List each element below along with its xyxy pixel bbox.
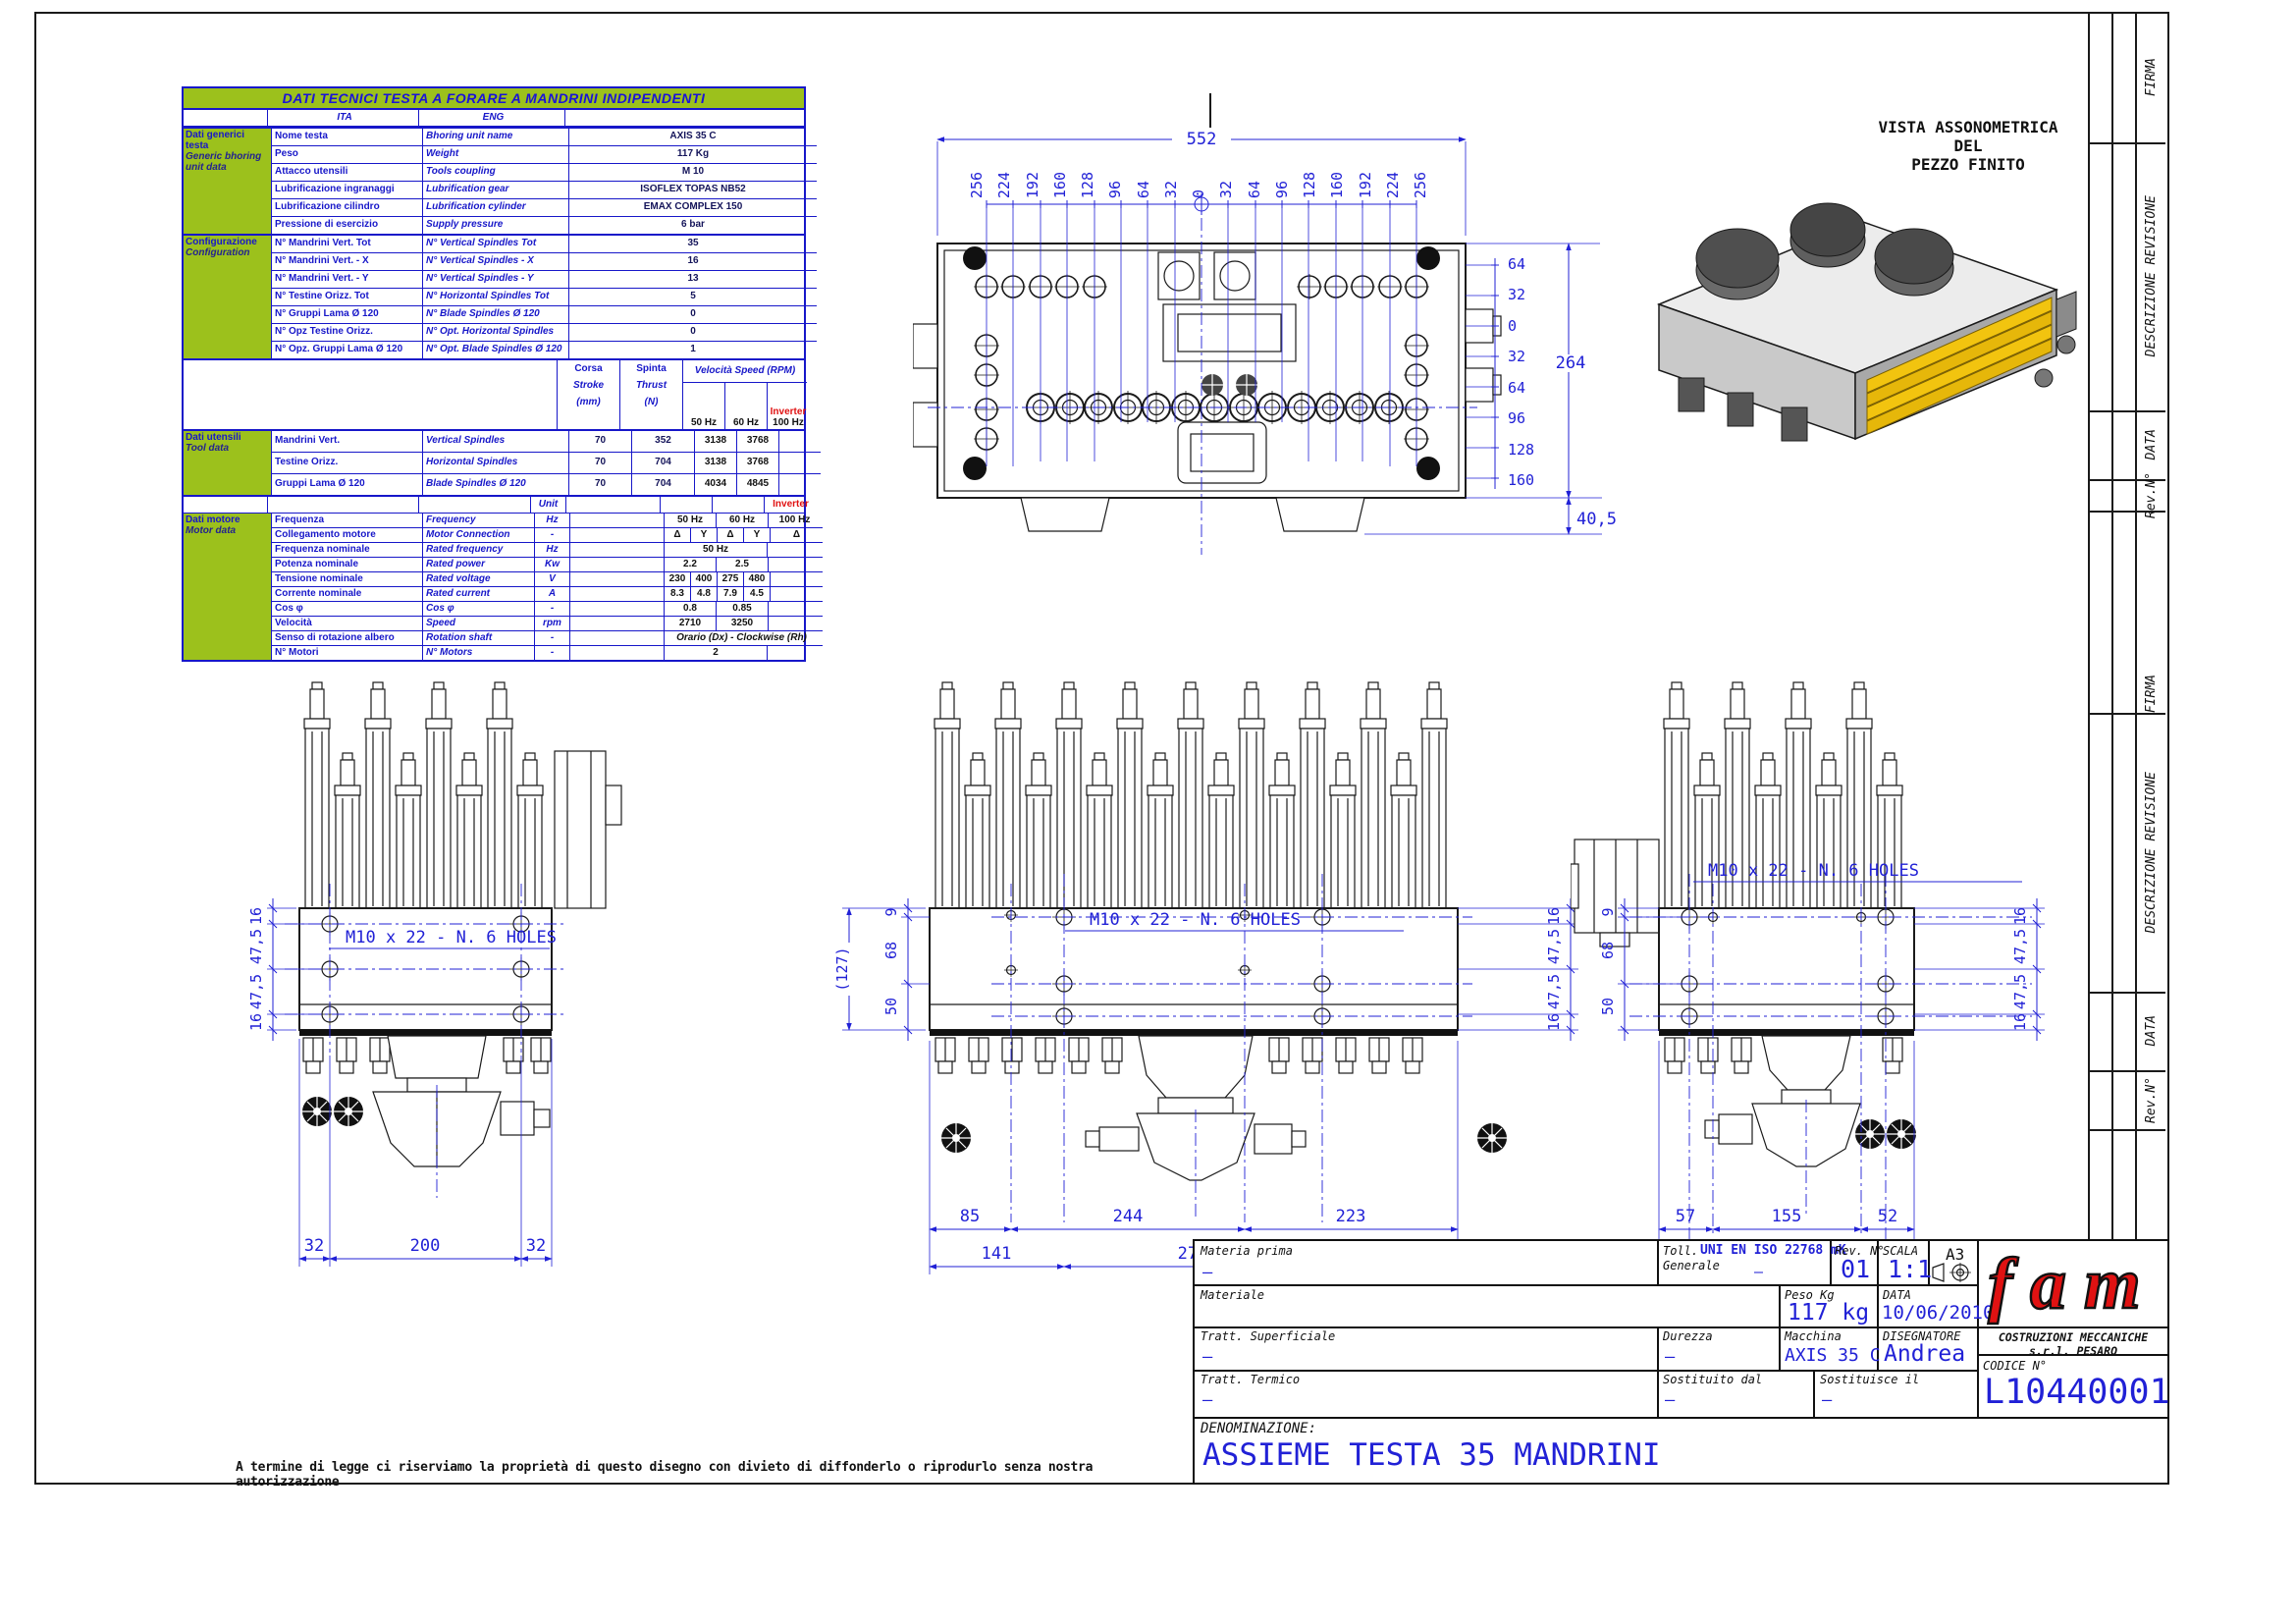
svg-text:47,5: 47,5 xyxy=(1545,974,1563,1009)
table-row: VelocitàSpeedrpm27103250 xyxy=(271,616,823,630)
svg-text:16: 16 xyxy=(2011,907,2029,925)
toll-value: UNI EN ISO 22768 mK xyxy=(1700,1243,1846,1258)
tratt-term-label: Tratt. Termico xyxy=(1201,1373,1300,1386)
codice-label: CODICE N° xyxy=(1983,1359,2047,1373)
svg-text:9: 9 xyxy=(1599,907,1617,916)
tool-holders xyxy=(935,1036,1422,1113)
top-view: 552 264 40,5 256224192160128966432032649… xyxy=(913,128,1629,609)
revision-label-revn-2: Rev.N° xyxy=(2137,1070,2165,1129)
drawing-sheet: FIRMA DESCRIZIONE REVISIONE DATA Rev.N° … xyxy=(0,0,2296,1624)
revision-label-data-1: DATA xyxy=(2137,410,2165,479)
technical-data-table: DATI TECNICI TESTA A FORARE A MANDRINI I… xyxy=(182,86,806,662)
svg-text:85: 85 xyxy=(960,1207,980,1226)
revision-label-data-2: DATA xyxy=(2137,992,2165,1070)
svg-text:16: 16 xyxy=(247,1013,265,1031)
projection-symbol xyxy=(1931,1263,1976,1282)
iso-body xyxy=(1659,203,2076,441)
svg-text:(127): (127) xyxy=(833,947,851,991)
svg-text:16: 16 xyxy=(1545,907,1563,925)
sostituito-dal-label: Sostituito dal xyxy=(1663,1373,1762,1386)
svg-text:16: 16 xyxy=(1545,1013,1563,1031)
materiale-label: Materiale xyxy=(1201,1288,1264,1302)
table-row: Pressione di esercizioSupply pressure6 b… xyxy=(271,216,817,234)
table-row: Frequenza nominaleRated frequencyHz50 Hz xyxy=(271,542,823,557)
svg-text:141: 141 xyxy=(982,1244,1012,1264)
table-row: Lubrificazione cilindroLubrification cyl… xyxy=(271,198,817,216)
table-row: Gruppi Lama Ø 120Blade Spindles Ø 120707… xyxy=(271,473,821,495)
hole-note: M10 x 22 - N. 6 HOLES xyxy=(329,928,557,948)
macchina-value: AXIS 35 C xyxy=(1785,1345,1881,1366)
table-row: PesoWeight117 Kg xyxy=(271,145,817,163)
section-configuration: ConfigurazioneConfiguration N° Mandrini … xyxy=(184,234,804,358)
hole-note: M10 x 22 - N. 6 HOLES xyxy=(1065,910,1404,931)
table-row: Potenza nominaleRated powerKw2.22.5 xyxy=(271,557,823,571)
toll-label-1: Toll. xyxy=(1663,1244,1698,1258)
svg-text:68: 68 xyxy=(1599,942,1617,959)
svg-text:32: 32 xyxy=(526,1236,546,1256)
svg-text:50: 50 xyxy=(882,998,900,1015)
table-row: Lubrificazione ingranaggiLubrification g… xyxy=(271,181,817,198)
svg-text:16: 16 xyxy=(247,907,265,925)
table-row: Senso di rotazione alberoRotation shaft-… xyxy=(271,630,823,645)
svg-text:244: 244 xyxy=(1113,1207,1144,1226)
table-title: DATI TECNICI TESTA A FORARE A MANDRINI I… xyxy=(184,88,804,110)
right-dim-chain: 16 47,5 47,5 16 xyxy=(1914,898,2045,1041)
svg-text:47,5: 47,5 xyxy=(247,974,265,1009)
gearbox xyxy=(941,1113,1507,1180)
denominazione-label: DENOMINAZIONE: xyxy=(1201,1421,1316,1436)
svg-text:16: 16 xyxy=(2011,1013,2029,1031)
table-row: Mandrini Vert.Vertical Spindles703523138… xyxy=(271,431,821,452)
isometric-view-title: VISTA ASSONOMETRICA DEL PEZZO FINITO xyxy=(1855,118,2081,174)
revision-label-firma-1: FIRMA xyxy=(2137,12,2165,142)
tool-holders xyxy=(303,1036,551,1092)
svg-text:155: 155 xyxy=(1772,1207,1802,1226)
gearbox xyxy=(1705,1104,1916,1166)
materia-prima-label: Materia prima xyxy=(1201,1244,1293,1258)
svg-text:57: 57 xyxy=(1676,1207,1695,1226)
section-label: Dati generici testa xyxy=(186,130,269,151)
revision-label-firma-2: FIRMA xyxy=(2137,511,2165,713)
hole-markers xyxy=(1678,905,1897,1028)
top-view-center-assembly xyxy=(1158,252,1296,483)
section-label-eng: Generic bhoring unit data xyxy=(186,151,269,173)
revision-label-descrizione-1: DESCRIZIONE REVISIONE xyxy=(2137,142,2165,410)
codice-value: L10440001 xyxy=(1984,1373,2170,1412)
legal-disclaimer: A termine di legge ci riserviamo la prop… xyxy=(236,1460,1119,1489)
disegnatore-value: Andrea xyxy=(1884,1341,1965,1367)
hole-note: M10 x 22 - N. 6 HOLES xyxy=(1693,861,2022,882)
table-row: Corrente nominaleRated currentA8.34.87.9… xyxy=(271,586,823,601)
overall-dim: (127) xyxy=(833,908,926,1030)
section-generic: Dati generici testaGeneric bhoring unit … xyxy=(184,127,804,234)
company-name: COSTRUZIONI MECCANICHE s.r.l. PESARO xyxy=(1979,1330,2167,1358)
spindle-row xyxy=(934,682,1447,908)
tratt-term-value: – xyxy=(1202,1390,1212,1410)
svg-text:200: 200 xyxy=(410,1236,441,1256)
svg-text:68: 68 xyxy=(882,942,900,959)
frame-center-mark xyxy=(1209,93,1211,128)
col-eng: ENG xyxy=(418,110,564,126)
materia-prima-value: – xyxy=(1202,1263,1212,1282)
table-row: N° Testine Orizz. TotN° Horizontal Spind… xyxy=(271,288,817,305)
rev-value: 01 xyxy=(1841,1255,1870,1283)
title-block: Materia prima – Toll. Generale UNI EN IS… xyxy=(1193,1239,2169,1485)
data-label: DATA xyxy=(1883,1288,1911,1302)
table-row: N° Mandrini Vert. - YN° Vertical Spindle… xyxy=(271,270,817,288)
col-ita: ITA xyxy=(267,110,418,126)
left-dim-chain: 9 68 50 xyxy=(882,898,930,1041)
table-row: Testine Orizz.Horizontal Spindles7070431… xyxy=(271,452,821,473)
table-row: Tensione nominaleRated voltageV230400275… xyxy=(271,571,823,586)
sostituisce-il-label: Sostituisce il xyxy=(1820,1373,1919,1386)
format-label: A3 xyxy=(1946,1245,1964,1264)
tratt-sup-label: Tratt. Superficiale xyxy=(1201,1329,1335,1343)
scala-value: 1:1 xyxy=(1888,1255,1932,1283)
sostituito-dal-value: – xyxy=(1665,1390,1675,1410)
table-row: FrequenzaFrequencyHz50 Hz60 Hz100 Hz xyxy=(271,514,823,527)
spindle-row xyxy=(304,682,621,908)
svg-text:M10 x 22 - N. 6 HOLES: M10 x 22 - N. 6 HOLES xyxy=(1090,910,1301,930)
table-row: Attacco utensiliTools couplingM 10 xyxy=(271,163,817,181)
tratt-sup-value: – xyxy=(1202,1347,1212,1367)
durezza-label: Durezza xyxy=(1663,1329,1713,1343)
front-view-left: M10 x 22 - N. 6 HOLES 16 47,5 47,5 16 32… xyxy=(226,648,667,1296)
table-row: N° Mandrini Vert. - XN° Vertical Spindle… xyxy=(271,252,817,270)
svg-text:M10 x 22 - N. 6 HOLES: M10 x 22 - N. 6 HOLES xyxy=(1708,861,1919,881)
table-row: N° Gruppi Lama Ø 120N° Blade Spindles Ø … xyxy=(271,305,817,323)
top-view-x-tick-labels: 2562241921601289664320326496128160192224… xyxy=(968,145,1429,198)
gearbox xyxy=(302,1092,550,1166)
svg-text:50: 50 xyxy=(1599,998,1617,1015)
stroke-thrust-speed-header: CorsaStroke(mm) SpintaThrust(N) Velocità… xyxy=(184,358,804,429)
svg-text:M10 x 22 - N. 6 HOLES: M10 x 22 - N. 6 HOLES xyxy=(346,928,557,947)
table-row: Collegamento motoreMotor Connection-ΔYΔY… xyxy=(271,527,823,542)
macchina-label: Macchina xyxy=(1785,1329,1842,1343)
sostituisce-il-value: – xyxy=(1822,1390,1832,1410)
front-view-right: M10 x 22 - N. 6 HOLES 9 68 50 16 47,5 47… xyxy=(1571,628,2081,1306)
revision-label-revn-1: Rev.N° xyxy=(2137,479,2165,511)
denominazione-value: ASSIEME TESTA 35 MANDRINI xyxy=(1202,1437,1661,1473)
toll-dash: – xyxy=(1754,1263,1763,1280)
svg-text:9: 9 xyxy=(882,907,900,916)
right-dim-chain: 16 47,5 47,5 16 xyxy=(1458,898,1578,1041)
svg-text:47,5: 47,5 xyxy=(1545,929,1563,964)
top-view-y-tick-labels: 64320326496128160 xyxy=(1508,255,1551,489)
table-row: N° Opz Testine Orizz.N° Opt. Horizontal … xyxy=(271,323,817,341)
svg-text:47,5: 47,5 xyxy=(2011,929,2029,964)
dim-264: 264 xyxy=(1556,353,1586,373)
data-value: 10/06/2010 xyxy=(1882,1302,1994,1324)
toll-label-2: Generale xyxy=(1663,1259,1720,1272)
section-tools: Dati utensiliTool data Mandrini Vert.Ver… xyxy=(184,429,804,495)
table-language-header: ITA ENG xyxy=(184,110,804,127)
isometric-view: VISTA ASSONOMETRICA DEL PEZZO FINITO xyxy=(1620,93,2081,486)
revision-label-descrizione-2: DESCRIZIONE REVISIONE xyxy=(2137,713,2165,992)
front-view-middle: M10 x 22 - N. 6 HOLES (127) 9 68 50 xyxy=(766,628,1590,1306)
svg-text:32: 32 xyxy=(304,1236,324,1256)
section-motor: Dati motoreMotor data FrequenzaFrequency… xyxy=(184,513,804,660)
unit-header-row: Unit Inverter xyxy=(184,495,804,513)
spindle-row xyxy=(1571,682,1902,947)
dim-40-5: 40,5 xyxy=(1576,510,1617,529)
table-row: N° Opz. Gruppi Lama Ø 120N° Opt. Blade S… xyxy=(271,341,817,358)
durezza-value: – xyxy=(1665,1347,1675,1367)
tool-holders xyxy=(1665,1036,1902,1104)
table-row: Nome testaBhoring unit nameAXIS 35 C xyxy=(271,129,817,145)
table-row: Cos φCos φ-0.80.85 xyxy=(271,601,823,616)
company-logo: fam xyxy=(1979,1241,2167,1326)
svg-text:223: 223 xyxy=(1336,1207,1366,1226)
svg-text:47,5: 47,5 xyxy=(2011,974,2029,1009)
svg-text:47,5: 47,5 xyxy=(247,929,265,964)
table-row: N° Mandrini Vert. TotN° Vertical Spindle… xyxy=(271,236,817,252)
svg-text:52: 52 xyxy=(1878,1207,1897,1226)
left-dim-chain: 16 47,5 47,5 16 xyxy=(247,898,322,1041)
peso-value: 117 kg xyxy=(1788,1300,1869,1326)
